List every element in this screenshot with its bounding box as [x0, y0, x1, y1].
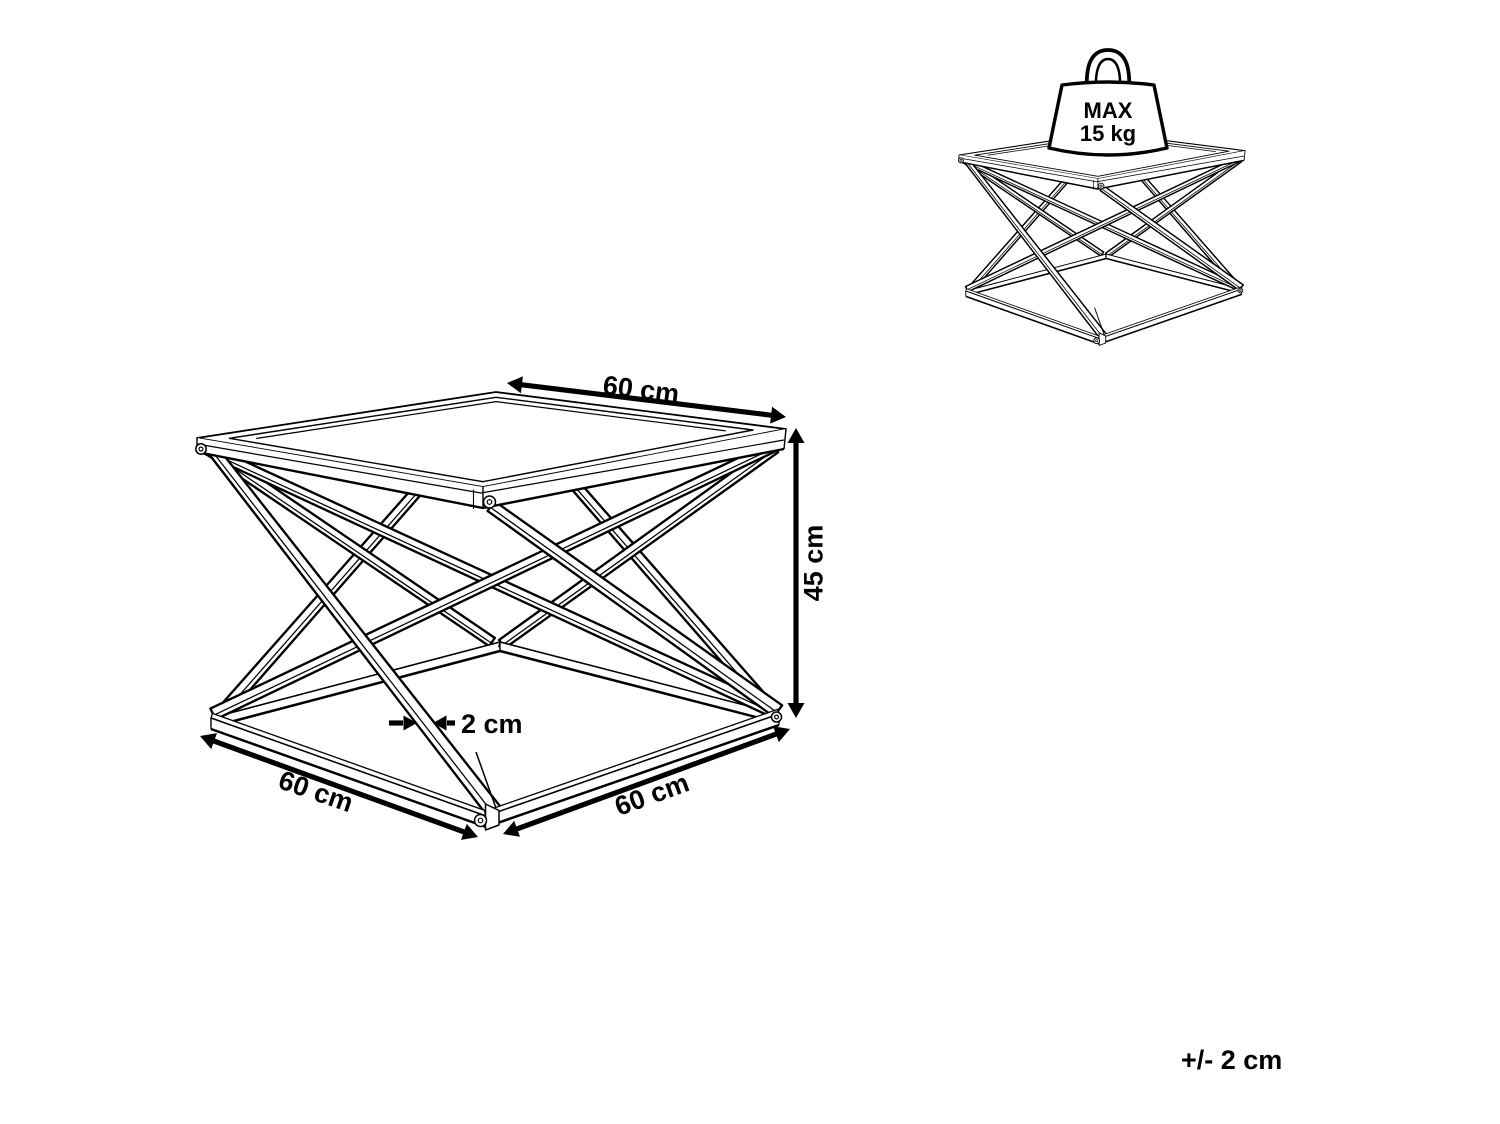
svg-text:MAX: MAX [1084, 98, 1133, 123]
svg-text:+/- 2 cm: +/- 2 cm [1181, 1045, 1282, 1075]
svg-text:2 cm: 2 cm [461, 709, 523, 739]
svg-text:15 kg: 15 kg [1080, 121, 1136, 146]
svg-text:45 cm: 45 cm [799, 525, 829, 602]
